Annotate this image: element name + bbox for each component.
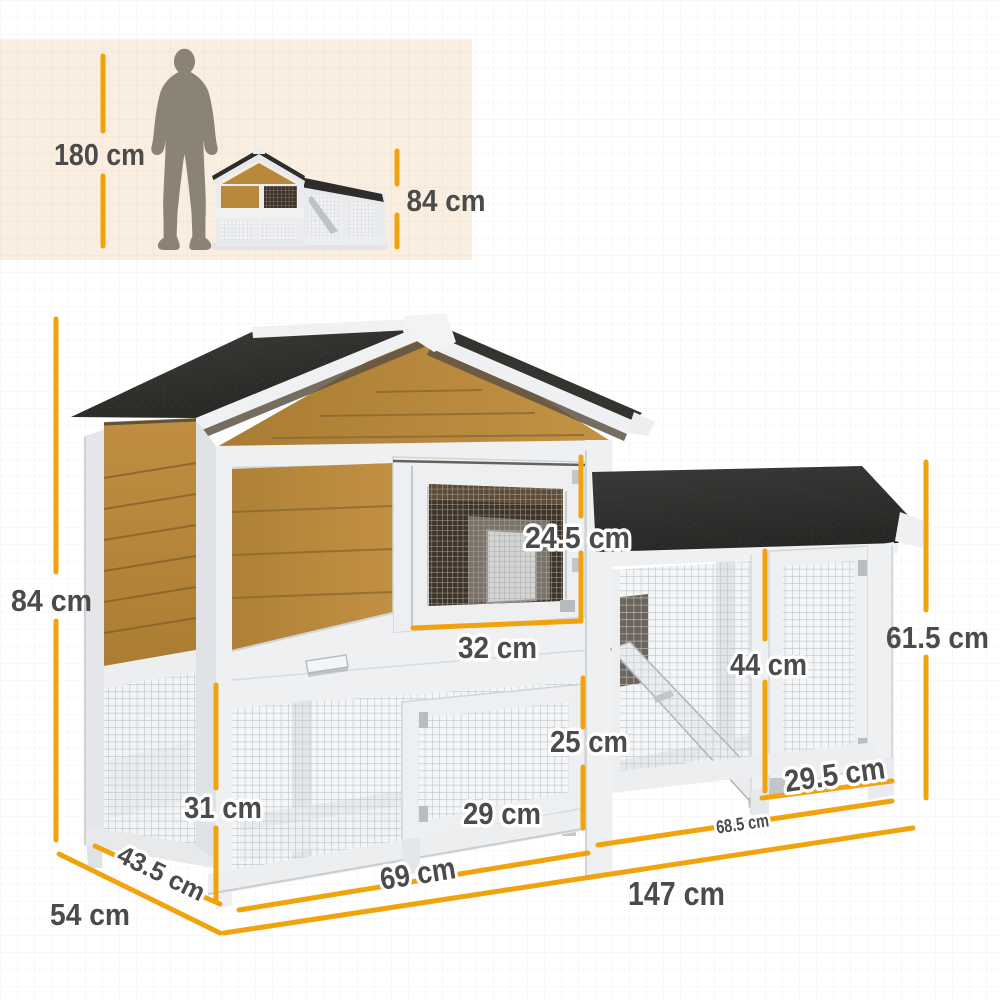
svg-text:25 cm: 25 cm [550, 724, 628, 759]
svg-text:61.5 cm: 61.5 cm [886, 620, 989, 655]
svg-text:31 cm: 31 cm [184, 790, 262, 825]
svg-text:84 cm: 84 cm [11, 583, 92, 618]
svg-text:29 cm: 29 cm [463, 796, 541, 831]
svg-text:180 cm: 180 cm [54, 137, 145, 172]
svg-text:54 cm: 54 cm [50, 897, 130, 932]
svg-text:84 cm: 84 cm [407, 183, 486, 218]
svg-text:24.5 cm: 24.5 cm [525, 520, 630, 555]
svg-text:44 cm: 44 cm [730, 647, 807, 682]
svg-text:32 cm: 32 cm [458, 630, 537, 665]
svg-text:147 cm: 147 cm [628, 875, 725, 912]
